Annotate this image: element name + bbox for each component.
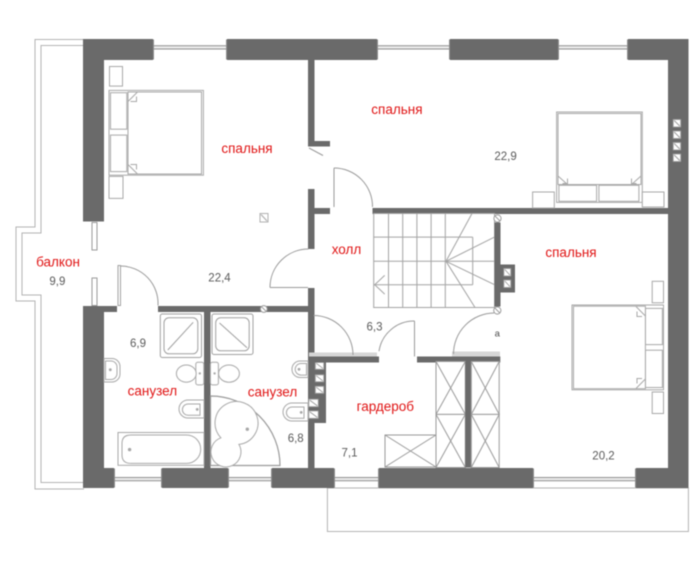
svg-text:a: a (495, 329, 501, 340)
svg-text:гардероб: гардероб (357, 399, 415, 414)
svg-text:7,1: 7,1 (342, 448, 358, 460)
svg-text:спальня: спальня (545, 245, 596, 260)
svg-text:санузел: санузел (248, 385, 297, 400)
svg-text:20,2: 20,2 (592, 451, 614, 463)
svg-text:холл: холл (332, 242, 362, 257)
svg-text:6,8: 6,8 (288, 433, 304, 445)
svg-text:9,9: 9,9 (49, 276, 65, 288)
svg-text:22,9: 22,9 (494, 151, 516, 163)
svg-text:спальня: спальня (221, 141, 272, 156)
svg-text:6,9: 6,9 (130, 338, 146, 350)
svg-text:6,3: 6,3 (367, 322, 383, 334)
svg-text:22,4: 22,4 (208, 273, 231, 285)
svg-text:спальня: спальня (371, 102, 422, 117)
svg-text:санузел: санузел (128, 384, 177, 399)
svg-text:балкон: балкон (36, 254, 80, 269)
